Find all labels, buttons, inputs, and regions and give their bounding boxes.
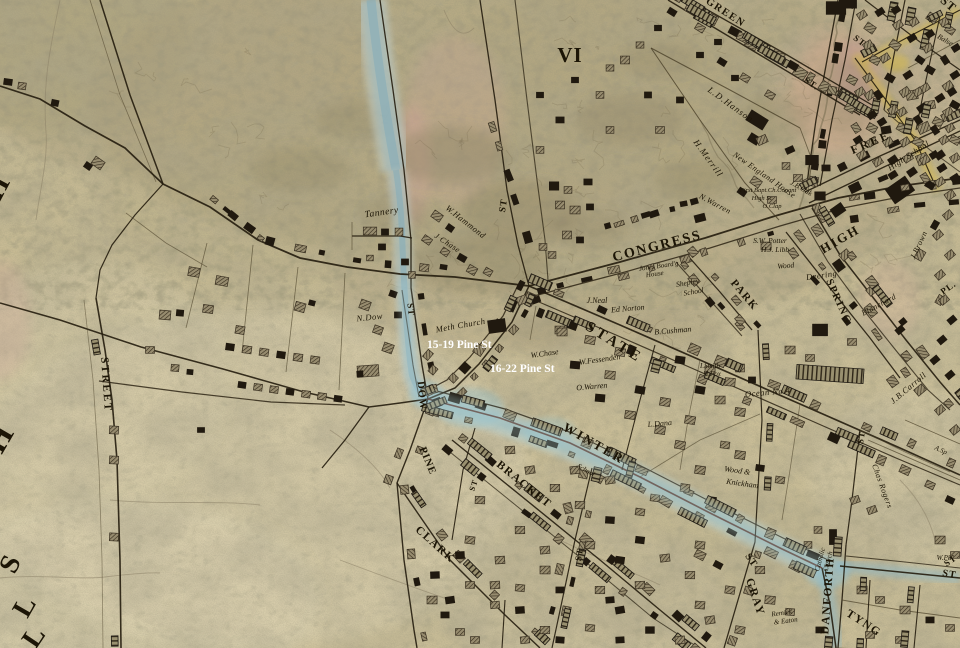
svg-text:High Sc: High Sc [751, 195, 773, 202]
svg-text:J.Neal: J.Neal [587, 296, 608, 305]
svg-text:W.Ph: W.Ph [937, 554, 952, 562]
svg-text:First Bapt.Ch.Conant: First Bapt.Ch.Conant [739, 187, 797, 194]
svg-text:VI: VI [557, 43, 582, 67]
svg-text:16-22 Pine St: 16-22 Pine St [490, 363, 555, 375]
svg-text:ST: ST [405, 303, 416, 317]
svg-text:H.J. Libb: H.J. Libb [760, 245, 789, 254]
svg-text:I.Smith: I.Smith [699, 362, 721, 370]
svg-text:Wood: Wood [777, 260, 795, 270]
svg-text:H.Fox: H.Fox [702, 370, 722, 378]
svg-text:S.W. Potter: S.W. Potter [753, 236, 787, 245]
svg-text:15-19 Pine St: 15-19 Pine St [427, 339, 492, 351]
svg-text:O.Clap: O.Clap [763, 203, 783, 210]
